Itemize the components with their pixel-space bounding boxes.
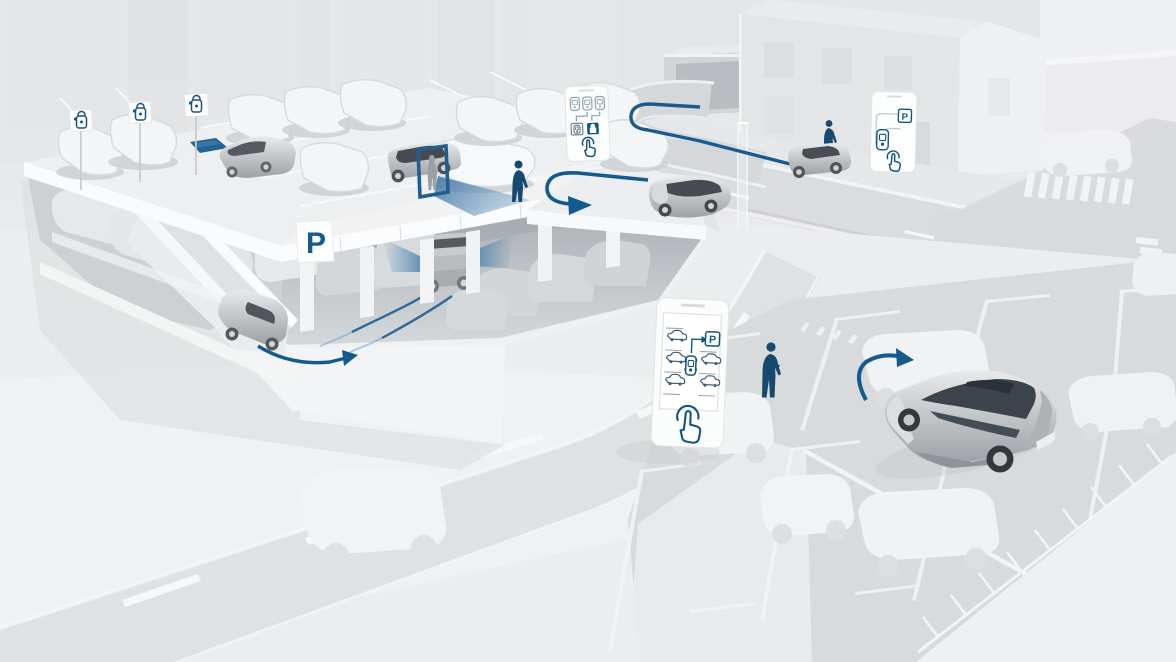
svg-text:P: P: [901, 112, 908, 123]
svg-text:P: P: [709, 334, 717, 346]
svg-text:P: P: [306, 227, 326, 260]
